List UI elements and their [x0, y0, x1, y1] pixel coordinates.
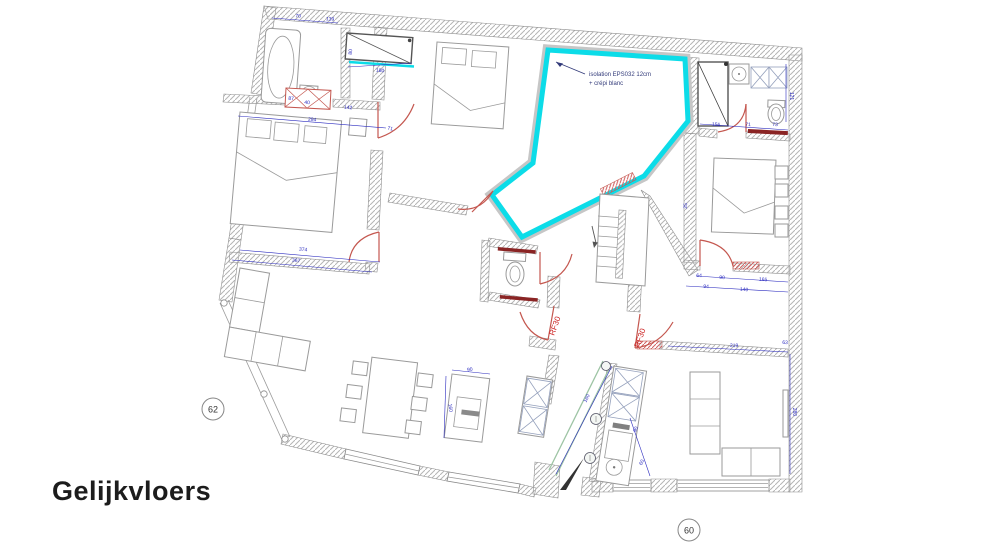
dim-label: 219 — [730, 343, 739, 349]
meter-icon — [602, 362, 611, 371]
dim-label: 60 — [638, 459, 646, 467]
dim-label: 180 — [376, 68, 385, 75]
toilet-icon — [503, 252, 526, 286]
closet-icon — [775, 166, 788, 179]
dim-label: 70 — [295, 13, 301, 19]
window — [677, 480, 769, 491]
tv-board-icon — [783, 390, 788, 437]
dim-label: 94 — [703, 284, 709, 290]
floorplan-drawing: 70 139 87 40 142 294 71 180 374 367 156 … — [0, 0, 990, 555]
dim-label: 165 — [759, 277, 768, 283]
closet-icon — [775, 184, 788, 197]
wardrobe-icon — [345, 33, 413, 64]
bed-icon — [431, 42, 509, 129]
marker-label-60: 60 — [684, 526, 694, 536]
dim-label: 90 — [467, 367, 473, 374]
dim-label: 142 — [344, 105, 353, 112]
dim-label: 90 — [719, 275, 725, 281]
window — [344, 449, 420, 475]
insulation-note-line2: + crépi blanc — [589, 81, 623, 87]
floor-title: Gelijkvloers — [52, 476, 211, 506]
insulation-note-line1: isolation EPS032 12cm — [589, 72, 651, 78]
dining-table-icon — [339, 354, 435, 440]
dim-label: 121 — [788, 92, 794, 101]
floorplan-page: 70 139 87 40 142 294 71 180 374 367 156 … — [0, 0, 990, 555]
toilet-icon — [768, 100, 785, 124]
dim-label: 374 — [299, 247, 308, 254]
sofa-icon — [224, 268, 320, 371]
dim-label: 367 — [292, 258, 301, 265]
dim-label: 156 — [712, 122, 721, 128]
sofa-icon — [690, 372, 780, 476]
dim-label: 63 — [782, 340, 788, 346]
dim-label: 73 — [772, 122, 778, 128]
dim-label: 25 — [683, 203, 689, 209]
marker-label-62: 62 — [208, 405, 218, 415]
entrance-door-icon — [560, 458, 584, 490]
dim-label: 160 — [447, 403, 454, 412]
dim-label: 160 — [583, 393, 592, 403]
nightstand-icon — [349, 118, 367, 136]
dim-label: 140 — [740, 287, 749, 293]
staircase-icon — [592, 194, 649, 286]
cabinet-icon — [751, 67, 787, 88]
dim-label: 90 — [632, 426, 640, 434]
cabinet-icon — [518, 376, 553, 437]
closet-icon — [775, 224, 788, 237]
dim-label: 71 — [745, 122, 751, 128]
dim-label: 139 — [326, 16, 335, 23]
dim-label: 294 — [308, 117, 317, 124]
bed-icon — [230, 112, 341, 232]
dim-label: 40 — [304, 100, 310, 106]
dim-label: 64 — [696, 273, 702, 279]
shower-icon — [698, 62, 728, 126]
dim-label: 87 — [288, 96, 294, 102]
closet-icon — [775, 206, 788, 219]
dim-label: 280 — [791, 408, 797, 417]
fire-rating-label: RF30 — [547, 315, 562, 337]
dim-label: 80 — [348, 49, 354, 55]
bed-icon — [711, 158, 776, 234]
